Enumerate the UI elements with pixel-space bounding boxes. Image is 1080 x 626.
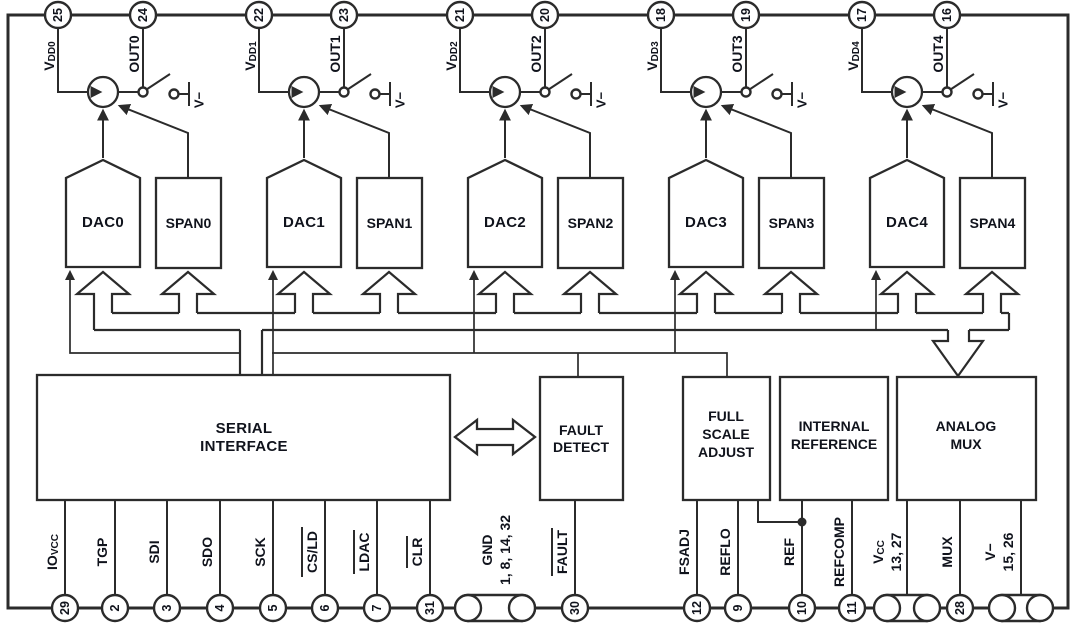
dac-channel-0: V− DAC0 SPAN0 25 24 VDD0 OUT0 — [41, 2, 221, 268]
pin-label-sdi: SDI — [146, 540, 162, 563]
pin-number: 7 — [370, 604, 384, 611]
vdd-label-sub: DD4 — [851, 41, 862, 61]
pin-label-tgp: TGP — [94, 538, 110, 567]
pin-label-vminus: V− — [982, 543, 998, 561]
span-label: SPAN3 — [769, 215, 815, 231]
pin-number: 20 — [538, 8, 552, 22]
vminus-terminal-icon — [179, 82, 190, 106]
bus-arrow-up-icon — [564, 272, 616, 313]
bottom-pin-labels: IOVCC TGP SDI SDO SCK CS/LD LDAC CLR GND… — [44, 515, 1016, 587]
vdd-wire — [862, 28, 892, 92]
out-label: OUT2 — [528, 35, 544, 73]
dac-channel-2: V− DAC2 SPAN2 21 20 VDD2 OUT2 — [443, 2, 623, 268]
bus-arrow-up-icon — [966, 272, 1018, 313]
span-to-amp-arrow — [723, 106, 791, 178]
dac-channel-3: V− DAC3 SPAN3 18 19 VDD3 OUT3 — [644, 2, 824, 268]
pin-label-reflo: REFLO — [717, 528, 733, 576]
pin-label-refcomp: REFCOMP — [831, 517, 847, 587]
bus-arrow-up-icon — [363, 272, 415, 313]
pin-number: 18 — [654, 8, 668, 22]
pin-number: 21 — [453, 8, 467, 22]
bus-arrow-up-icon — [765, 272, 817, 313]
span-label: SPAN0 — [166, 215, 212, 231]
switch-contact — [773, 90, 782, 99]
fault-detect-label: DETECT — [553, 439, 609, 455]
pin-label-sub: CC — [876, 540, 887, 554]
pin-label-clr: CLR — [409, 538, 425, 567]
switch-contact — [371, 90, 380, 99]
bus-arrow-up-icon — [881, 272, 933, 313]
pin-label-ref: REF — [781, 538, 797, 566]
pin-circle — [1027, 595, 1053, 621]
bus-top-line — [112, 313, 1009, 330]
pin-number: 4 — [213, 604, 227, 611]
pin-number: 10 — [795, 601, 809, 615]
vminus-label: V− — [393, 91, 408, 108]
out-label: OUT4 — [930, 35, 946, 73]
vminus-label: V− — [594, 91, 609, 108]
vdd-wire — [259, 28, 289, 92]
dac-label: DAC3 — [685, 214, 727, 231]
pin-circle — [914, 595, 940, 621]
bus-arrow-up-icon — [479, 272, 531, 313]
vdd-label: VDD3 — [644, 41, 661, 71]
pin-number: 24 — [136, 8, 150, 22]
pin-number: 6 — [318, 604, 332, 611]
pin-number: 25 — [51, 8, 65, 22]
bus-arrow-down-icon — [933, 330, 983, 376]
bus-arrow-up-icon — [278, 272, 330, 313]
vminus-label: V− — [192, 91, 207, 108]
pin-label-sdo: SDO — [199, 537, 215, 567]
pin-number: 31 — [423, 601, 437, 615]
dac-data-rail — [70, 272, 876, 377]
bus-arrow-up-icon — [77, 272, 129, 330]
pin-label-gnd: GND — [479, 534, 495, 565]
vdd-label-sub: DD2 — [449, 41, 460, 61]
pin-label-vcc: VCC — [870, 540, 887, 564]
pin-label-csld: CS/LD — [304, 531, 320, 573]
pin-number: 12 — [690, 601, 704, 615]
ref-branch-wire — [758, 500, 800, 522]
bus-arrow-up-icon — [162, 272, 214, 313]
pin-label-ldac: LDAC — [356, 533, 372, 572]
vdd-wire — [58, 28, 88, 92]
analog-mux-label: ANALOG — [936, 418, 997, 434]
pin-number: 16 — [940, 8, 954, 22]
internal-reference-label: INTERNAL — [799, 418, 870, 434]
vminus-terminal-icon — [782, 82, 793, 106]
vdd-label: VDD0 — [41, 41, 58, 71]
span-to-amp-arrow — [120, 106, 188, 178]
vminus-label: V− — [795, 91, 810, 108]
vminus-terminal-icon — [581, 82, 592, 106]
pin-number: 30 — [568, 601, 582, 615]
pin-number: 5 — [266, 604, 280, 611]
span-to-amp-arrow — [321, 106, 389, 178]
internal-reference-label: REFERENCE — [791, 436, 877, 452]
pin-number: 23 — [337, 8, 351, 22]
dac-label: DAC1 — [283, 214, 325, 231]
span-to-amp-arrow — [924, 106, 992, 178]
dac-label: DAC4 — [886, 214, 928, 231]
pin-circle — [455, 595, 481, 621]
pin-label-mux: MUX — [939, 536, 955, 568]
pin-label-gnd-pins: 1, 8, 14, 32 — [497, 515, 513, 585]
switch-arm-icon — [750, 74, 774, 90]
lower-blocks: SERIAL INTERFACE FAULT DETECT FULL SCALE… — [37, 375, 1036, 500]
pin-label-fault: FAULT — [554, 530, 570, 575]
switch-arm-icon — [951, 74, 975, 90]
pin-label-main: IO — [44, 555, 60, 570]
vdd-label: VDD1 — [242, 41, 259, 71]
dac-label: DAC2 — [484, 214, 526, 231]
pin-number: 22 — [252, 8, 266, 22]
switch-contact — [974, 90, 983, 99]
block-diagram: V− DAC0 SPAN0 25 24 VDD0 OUT0 V− DAC1 SP… — [0, 0, 1080, 626]
span-label: SPAN4 — [970, 215, 1016, 231]
vdd-wire — [661, 28, 691, 92]
fault-detect-label: FAULT — [559, 422, 604, 438]
vdd-label-sub: DD3 — [650, 41, 661, 61]
switch-arm-icon — [147, 74, 171, 90]
pin-number: 3 — [160, 604, 174, 611]
out-label: OUT3 — [729, 35, 745, 73]
pin-label-sub: VCC — [50, 534, 61, 555]
full-scale-adjust-label: FULL — [708, 408, 744, 424]
serial-interface-label: INTERFACE — [200, 438, 288, 455]
span-label: SPAN1 — [367, 215, 413, 231]
dac-channel-1: V− DAC1 SPAN1 22 23 VDD1 OUT1 — [242, 2, 422, 268]
vdd-label: VDD4 — [845, 41, 862, 71]
pin-label-fsadj: FSADJ — [676, 529, 692, 575]
pin-label-iovcc: IOVCC — [44, 534, 61, 570]
out-label: OUT0 — [126, 35, 142, 73]
pin-circle — [989, 595, 1015, 621]
pin-number: 19 — [739, 8, 753, 22]
switch-arm-icon — [348, 74, 372, 90]
pin-label-vminus-pins: 15, 26 — [1000, 532, 1016, 571]
span-to-amp-arrow — [522, 106, 590, 178]
full-scale-adjust-label: ADJUST — [698, 444, 754, 460]
switch-contact — [572, 90, 581, 99]
vminus-label: V− — [996, 91, 1011, 108]
out-label: OUT1 — [327, 35, 343, 73]
dac-channel-4: V− DAC4 SPAN4 17 16 VDD4 OUT4 — [845, 2, 1025, 268]
pin-circle — [509, 595, 535, 621]
switch-arm-icon — [549, 74, 573, 90]
vdd-wire — [460, 28, 490, 92]
pin-number: 2 — [108, 604, 122, 611]
pin-number: 11 — [845, 601, 859, 614]
vminus-terminal-icon — [380, 82, 391, 106]
span-label: SPAN2 — [568, 215, 614, 231]
pin-circle — [874, 595, 900, 621]
bus-arrow-up-icon — [680, 272, 732, 313]
analog-mux-label: MUX — [950, 436, 982, 452]
pin-number: 28 — [953, 601, 967, 615]
serial-interface-label: SERIAL — [216, 420, 273, 437]
bus-stem — [240, 330, 262, 375]
junction-dot — [798, 518, 807, 527]
bidirectional-arrow-icon — [455, 420, 535, 454]
pin-number: 17 — [855, 8, 869, 22]
pin-label-sck: SCK — [252, 537, 268, 567]
dac-label: DAC0 — [82, 214, 124, 231]
diagram-canvas: V− DAC0 SPAN0 25 24 VDD0 OUT0 V− DAC1 SP… — [0, 0, 1080, 626]
vdd-label-sub: DD0 — [47, 41, 58, 61]
vminus-terminal-icon — [983, 82, 994, 106]
vdd-label-sub: DD1 — [248, 41, 259, 61]
pin-number: 9 — [731, 604, 745, 611]
pin-number: 29 — [58, 601, 72, 615]
pin-label-vcc-pins: 13, 27 — [888, 532, 904, 571]
switch-contact — [170, 90, 179, 99]
full-scale-adjust-label: SCALE — [702, 426, 749, 442]
vdd-label: VDD2 — [443, 41, 460, 71]
